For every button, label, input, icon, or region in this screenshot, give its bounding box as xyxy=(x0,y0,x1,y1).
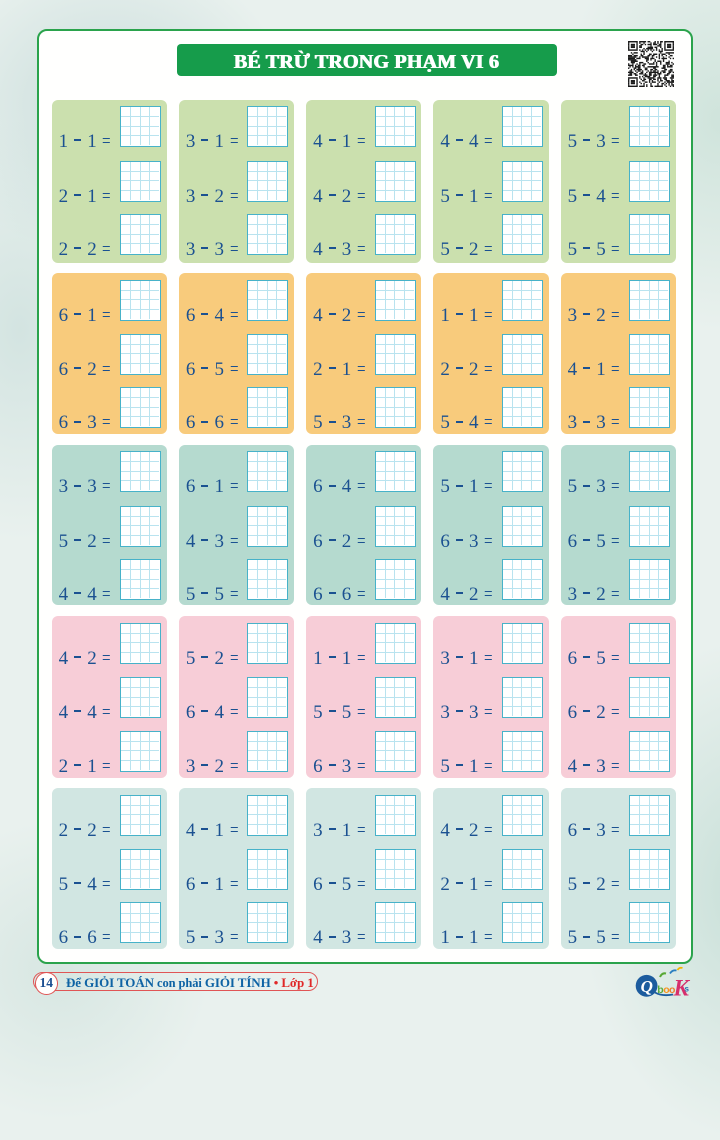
svg-text:Q: Q xyxy=(641,977,653,996)
svg-text:s: s xyxy=(685,985,690,994)
